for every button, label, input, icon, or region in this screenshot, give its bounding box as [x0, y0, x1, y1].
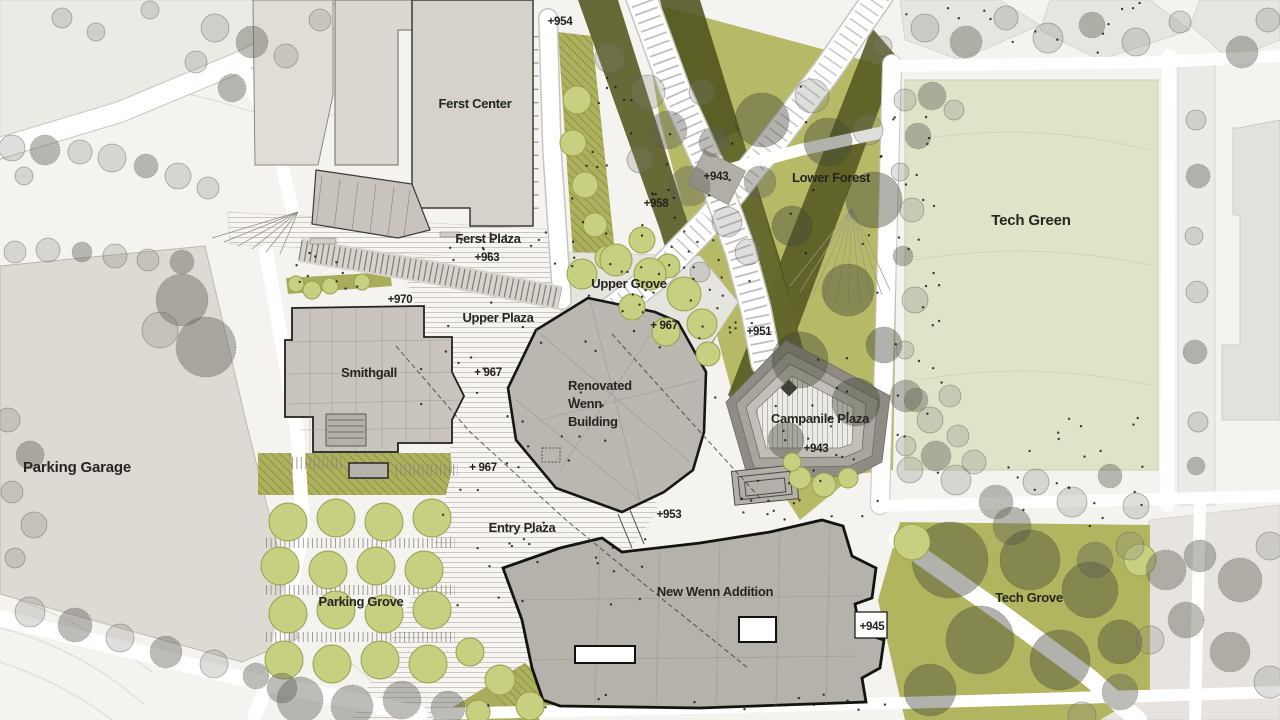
tree-symbol	[365, 503, 403, 541]
tree-symbol	[30, 135, 60, 165]
tree-symbol	[1168, 602, 1204, 638]
pedestrian-dot	[751, 322, 753, 324]
tree-symbol	[939, 385, 961, 407]
tree-symbol	[595, 43, 625, 73]
pedestrian-dot	[1089, 525, 1091, 527]
pedestrian-dot	[688, 250, 690, 252]
pedestrian-dot	[487, 704, 489, 706]
pedestrian-dot	[897, 434, 899, 436]
tree-symbol	[563, 86, 591, 114]
pedestrian-dot	[641, 224, 643, 226]
tree-symbol	[699, 127, 729, 157]
tree-symbol	[812, 473, 836, 497]
pedestrian-dot	[477, 489, 479, 491]
pedestrian-dot	[1034, 30, 1036, 32]
pedestrian-dot	[442, 514, 444, 516]
tree-symbol	[4, 241, 26, 263]
tree-symbol	[303, 281, 321, 299]
pedestrian-dot	[933, 205, 935, 207]
tree-symbol	[735, 239, 761, 265]
pedestrian-dot	[1007, 466, 1009, 468]
tree-symbol	[309, 551, 347, 589]
pedestrian-dot	[652, 292, 654, 294]
pedestrian-dot	[572, 241, 574, 243]
tree-symbol	[772, 332, 828, 388]
pedestrian-dot	[692, 278, 694, 280]
pedestrian-dot	[449, 247, 451, 249]
tree-symbol	[1226, 36, 1258, 68]
pedestrian-dot	[813, 704, 815, 706]
pedestrian-dot	[1028, 450, 1030, 452]
tree-symbol	[141, 1, 159, 19]
pedestrian-dot	[690, 299, 692, 301]
pedestrian-dot	[734, 321, 736, 323]
pedestrian-dot	[506, 415, 508, 417]
pedestrian-dot	[606, 77, 608, 79]
pedestrian-dot	[721, 276, 723, 278]
tree-symbol	[21, 512, 47, 538]
tree-symbol	[735, 93, 789, 147]
pedestrian-dot	[877, 500, 879, 502]
tree-symbol	[1169, 11, 1191, 33]
pedestrian-dot	[857, 709, 859, 711]
tree-symbol	[891, 163, 909, 181]
tree-symbol	[822, 264, 874, 316]
tree-symbol	[696, 342, 720, 366]
pedestrian-dot	[1022, 509, 1024, 511]
pedestrian-dot	[498, 596, 500, 598]
tree-symbol	[1098, 464, 1122, 488]
pedestrian-dot	[894, 116, 896, 118]
pedestrian-dot	[748, 280, 750, 282]
pedestrian-dot	[596, 166, 598, 168]
pedestrian-dot	[1107, 23, 1109, 25]
tree-symbol	[667, 277, 701, 311]
pedestrian-dot	[895, 343, 897, 345]
tree-symbol	[0, 135, 25, 161]
tree-symbol	[413, 591, 451, 629]
pedestrian-dot	[918, 239, 920, 241]
pedestrian-dot	[683, 266, 685, 268]
pedestrian-dot	[741, 497, 743, 499]
pedestrian-dot	[609, 263, 611, 265]
tree-symbol	[1184, 540, 1216, 572]
elevation-951: +951	[747, 326, 773, 338]
renovated-wenn-label-line3: Building	[568, 414, 618, 429]
pedestrian-dot	[905, 13, 907, 15]
tree-symbol	[361, 641, 399, 679]
pedestrian-dot	[1056, 482, 1058, 484]
upper-plaza-label: Upper Plaza	[462, 310, 534, 325]
pedestrian-dot	[445, 350, 447, 352]
tree-symbol	[1023, 469, 1049, 495]
campus-site-plan: Ferst Center Ferst Plaza Upper Grove Upp…	[0, 0, 1280, 720]
tree-symbol	[15, 597, 45, 627]
pedestrian-dot	[517, 466, 519, 468]
tree-symbol	[68, 140, 92, 164]
tree-symbol	[689, 79, 715, 105]
pedestrian-dot	[632, 293, 634, 295]
tree-symbol	[905, 123, 931, 149]
pedestrian-dot	[511, 545, 513, 547]
tree-symbol	[0, 408, 20, 432]
tree-symbol	[631, 75, 665, 109]
pedestrian-dot	[571, 197, 573, 199]
tree-symbol	[649, 111, 687, 149]
pedestrian-dot	[1132, 7, 1134, 9]
pedestrian-dot	[452, 259, 454, 261]
tree-symbol	[201, 14, 229, 42]
pedestrian-dot	[641, 296, 643, 298]
pedestrian-dot	[698, 337, 700, 339]
pedestrian-dot	[1102, 33, 1104, 35]
tree-symbol	[269, 595, 307, 633]
pedestrian-dot	[612, 547, 614, 549]
pedestrian-dot	[800, 85, 802, 87]
tree-symbol	[619, 294, 645, 320]
pedestrian-dot	[793, 502, 795, 504]
tree-symbol	[52, 8, 72, 28]
pedestrian-dot	[336, 280, 338, 282]
tree-symbol	[1033, 23, 1063, 53]
tree-symbol	[106, 624, 134, 652]
pedestrian-dot	[470, 356, 472, 358]
tech-grove-label: Tech Grove	[995, 590, 1063, 605]
tree-symbol	[583, 213, 607, 237]
pedestrian-dot	[1099, 450, 1101, 452]
tree-symbol	[896, 436, 916, 456]
tree-symbol	[944, 100, 964, 120]
tree-symbol	[236, 26, 268, 58]
pedestrian-dot	[884, 703, 886, 705]
tree-symbol	[772, 206, 812, 246]
pedestrian-dot	[545, 231, 547, 233]
elevation-970: +970	[388, 294, 413, 306]
pedestrian-dot	[922, 306, 924, 308]
tree-symbol	[1122, 28, 1150, 56]
tree-symbol	[72, 242, 92, 262]
tree-symbol	[1183, 340, 1207, 364]
tree-symbol	[627, 147, 653, 173]
pedestrian-dot	[775, 405, 777, 407]
pedestrian-dot	[476, 547, 478, 549]
pedestrian-dot	[892, 118, 894, 120]
pedestrian-dot	[344, 287, 346, 289]
pedestrian-dot	[728, 179, 730, 181]
pedestrian-dot	[488, 565, 490, 567]
pedestrian-dot	[940, 381, 942, 383]
pedestrian-dot	[1093, 502, 1095, 504]
pedestrian-dot	[554, 262, 556, 264]
pedestrian-dot	[561, 435, 563, 437]
tree-symbol	[409, 645, 447, 683]
tree-symbol	[58, 608, 92, 642]
tree-symbol	[383, 681, 421, 719]
tree-symbol	[1057, 487, 1087, 517]
tree-symbol	[1079, 12, 1105, 38]
pedestrian-dot	[633, 330, 635, 332]
pedestrian-dot	[1083, 455, 1085, 457]
pedestrian-dot	[903, 435, 905, 437]
pedestrian-dot	[307, 275, 309, 277]
pedestrian-dot	[743, 708, 745, 710]
pedestrian-dot	[880, 156, 882, 158]
pedestrian-dot	[928, 137, 930, 139]
elevation-953: +953	[657, 509, 682, 521]
pedestrian-dot	[788, 482, 790, 484]
pedestrian-dot	[522, 420, 524, 422]
pedestrian-dot	[926, 143, 928, 145]
pedestrian-dot	[630, 99, 632, 101]
tree-symbol	[15, 167, 33, 185]
tree-symbol	[911, 14, 939, 42]
entry-plaza-label: Entry Plaza	[489, 520, 557, 535]
tree-symbol	[267, 673, 297, 703]
tree-symbol	[1256, 532, 1280, 560]
pedestrian-dot	[1134, 491, 1136, 493]
pedestrian-dot	[490, 301, 492, 303]
pedestrian-dot	[594, 350, 596, 352]
tree-symbol	[134, 154, 158, 178]
pedestrian-dot	[585, 165, 587, 167]
pedestrian-dot	[668, 264, 670, 266]
pedestrian-dot	[459, 489, 461, 491]
pedestrian-dot	[598, 698, 600, 700]
pedestrian-dot	[932, 272, 934, 274]
pedestrian-dot	[783, 518, 785, 520]
pedestrian-dot	[342, 272, 344, 274]
pedestrian-dot	[767, 500, 769, 502]
pedestrian-dot	[571, 265, 573, 267]
tree-symbol	[950, 26, 982, 58]
pedestrian-dot	[1140, 504, 1142, 506]
tree-symbol	[1, 481, 23, 503]
elevation-945: +945	[860, 621, 886, 633]
pedestrian-dot	[527, 445, 529, 447]
pedestrian-dot	[605, 694, 607, 696]
tree-symbol	[900, 198, 924, 222]
tree-symbol	[572, 172, 598, 198]
tree-symbol	[1188, 412, 1208, 432]
pedestrian-dot	[613, 570, 615, 572]
tree-symbol	[87, 23, 105, 41]
pedestrian-dot	[812, 189, 814, 191]
pedestrian-dot	[983, 10, 985, 12]
pedestrian-dot	[1057, 432, 1059, 434]
elevation-963: +963	[475, 252, 500, 264]
tree-symbol	[1186, 110, 1206, 130]
pedestrian-dot	[683, 230, 685, 232]
tree-symbol	[687, 309, 717, 339]
pedestrian-dot	[638, 304, 640, 306]
pedestrian-dot	[922, 199, 924, 201]
tree-symbol	[274, 44, 298, 68]
pedestrian-dot	[1068, 487, 1070, 489]
tree-symbol	[872, 36, 892, 56]
tree-symbol	[783, 453, 801, 471]
elevation-958: +958	[644, 198, 670, 210]
pedestrian-dot	[958, 17, 960, 19]
tree-symbol	[1218, 558, 1262, 602]
tree-symbol	[629, 227, 655, 253]
tech-green-label: Tech Green	[991, 212, 1070, 229]
tree-symbol	[918, 82, 946, 110]
tree-symbol	[804, 118, 852, 166]
pedestrian-dot	[525, 450, 527, 452]
pedestrian-dot	[805, 121, 807, 123]
renovated-wenn-label-line2: Wenn	[568, 396, 602, 411]
pedestrian-dot	[641, 234, 643, 236]
tree-symbol	[5, 548, 25, 568]
pedestrian-dot	[506, 462, 508, 464]
tree-symbol	[150, 636, 182, 668]
pedestrian-dot	[640, 266, 642, 268]
pedestrian-dot	[639, 598, 641, 600]
pedestrian-dot	[790, 213, 792, 215]
pedestrian-dot	[819, 480, 821, 482]
tree-symbol	[288, 276, 304, 292]
pedestrian-dot	[1012, 41, 1014, 43]
site-plan-svg: Ferst Center Ferst Plaza Upper Grove Upp…	[0, 0, 1280, 720]
campanile-plaza-label: Campanile Plaza	[771, 411, 870, 426]
pedestrian-dot	[807, 438, 809, 440]
tree-symbol	[456, 638, 484, 666]
pedestrian-dot	[674, 217, 676, 219]
tree-symbol	[917, 407, 943, 433]
pedestrian-dot	[811, 404, 813, 406]
pedestrian-dot	[606, 87, 608, 89]
pedestrian-dot	[356, 285, 358, 287]
pedestrian-dot	[1101, 517, 1103, 519]
elevation-943-campanile: +943	[804, 443, 829, 455]
pedestrian-dot	[798, 499, 800, 501]
tree-symbol	[1077, 542, 1113, 578]
pedestrian-dot	[861, 515, 863, 517]
pedestrian-dot	[773, 510, 775, 512]
pedestrian-dot	[652, 193, 654, 195]
elevation-943-upper: +943	[704, 171, 729, 183]
pedestrian-dot	[1080, 425, 1082, 427]
pedestrian-dot	[729, 326, 731, 328]
pedestrian-dot	[592, 151, 594, 153]
pedestrian-dot	[610, 603, 612, 605]
tree-symbol	[516, 692, 544, 720]
tree-symbol	[994, 6, 1018, 30]
pedestrian-dot	[630, 132, 632, 134]
pedestrian-dot	[299, 281, 301, 283]
tree-symbol	[1256, 8, 1280, 32]
tree-symbol	[185, 51, 207, 73]
elevation-967-entry: + 967	[469, 462, 497, 474]
pedestrian-dot	[295, 264, 297, 266]
pedestrian-dot	[1121, 8, 1123, 10]
pedestrian-dot	[926, 413, 928, 415]
pedestrian-dot	[750, 499, 752, 501]
pedestrian-dot	[932, 367, 934, 369]
tree-symbol	[897, 457, 923, 483]
pedestrian-dot	[1034, 489, 1036, 491]
pedestrian-dot	[693, 701, 695, 703]
tree-symbol	[354, 274, 370, 290]
pedestrian-dot	[805, 252, 807, 254]
pedestrian-dot	[335, 261, 337, 263]
tree-symbol	[890, 380, 922, 412]
pedestrian-dot	[584, 340, 586, 342]
pedestrian-dot	[538, 239, 540, 241]
pedestrian-dot	[925, 285, 927, 287]
pedestrian-dot	[308, 252, 310, 254]
tree-symbol	[322, 278, 338, 294]
pedestrian-dot	[813, 469, 815, 471]
pedestrian-dot	[862, 243, 864, 245]
pedestrian-dot	[582, 221, 584, 223]
pedestrian-dot	[621, 271, 623, 273]
pedestrian-dot	[573, 257, 575, 259]
tree-symbol	[466, 700, 490, 720]
pedestrian-dot	[314, 255, 316, 257]
pedestrian-dot	[836, 387, 838, 389]
tree-symbol	[1123, 493, 1149, 519]
pedestrian-dot	[766, 513, 768, 515]
new-wenn-addition-label: New Wenn Addition	[657, 584, 774, 599]
upper-grove-label: Upper Grove	[591, 276, 667, 291]
parking-grove-label: Parking Grove	[319, 594, 404, 609]
pedestrian-dot	[476, 392, 478, 394]
pedestrian-dot	[693, 266, 695, 268]
ferst-center-building	[412, 0, 533, 226]
pedestrian-dot	[654, 193, 656, 195]
pedestrian-dot	[712, 239, 714, 241]
smithgall-label: Smithgall	[341, 365, 397, 380]
elevation-967-plaza: + 967	[474, 367, 502, 379]
pedestrian-dot	[420, 368, 422, 370]
pedestrian-dot	[947, 7, 949, 9]
pedestrian-dot	[925, 116, 927, 118]
pedestrian-dot	[540, 342, 542, 344]
pedestrian-dot	[1056, 39, 1058, 41]
tree-symbol	[269, 503, 307, 541]
tree-symbol	[357, 547, 395, 585]
pedestrian-dot	[536, 561, 538, 563]
pedestrian-dot	[846, 357, 848, 359]
tree-symbol	[560, 130, 586, 156]
tree-symbol	[1146, 550, 1186, 590]
pedestrian-dot	[716, 307, 718, 309]
tree-symbol	[1098, 620, 1142, 664]
tree-symbol	[170, 250, 194, 274]
tree-symbol	[1000, 530, 1060, 590]
pedestrian-dot	[696, 241, 698, 243]
pedestrian-dot	[599, 537, 601, 539]
tech-green-lawn	[905, 80, 1158, 470]
pedestrian-dot	[932, 324, 934, 326]
tree-symbol	[103, 244, 127, 268]
pedestrian-dot	[483, 248, 485, 250]
pedestrian-dot	[846, 390, 848, 392]
pedestrian-dot	[1058, 438, 1060, 440]
tree-symbol	[712, 207, 742, 237]
tree-symbol	[921, 441, 951, 471]
pedestrian-dot	[1138, 2, 1140, 4]
tree-symbol	[165, 163, 191, 189]
tree-symbol	[176, 317, 236, 377]
pedestrian-dot	[673, 197, 675, 199]
pedestrian-dot	[456, 604, 458, 606]
pedestrian-dot	[868, 234, 870, 236]
tree-symbol	[142, 312, 178, 348]
pedestrian-dot	[522, 326, 524, 328]
tree-symbol	[485, 665, 515, 695]
